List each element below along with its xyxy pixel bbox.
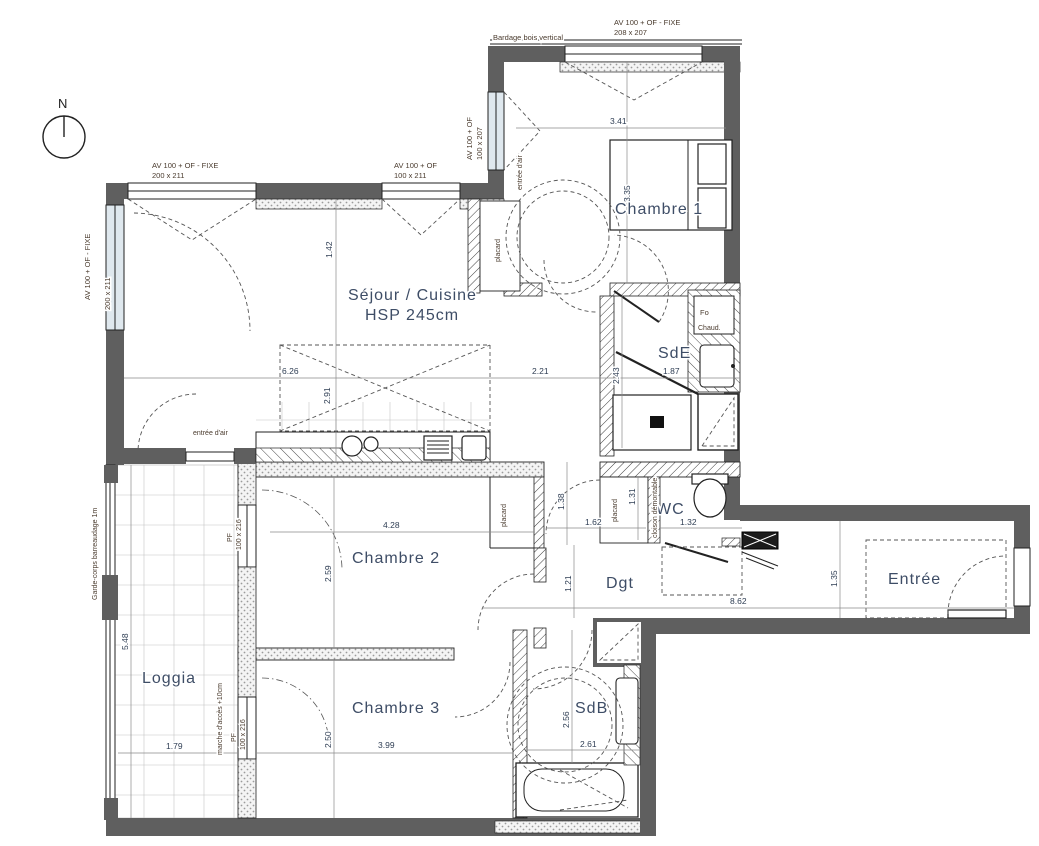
toilet bbox=[692, 474, 728, 517]
dim-sejour-h1: 1.42 bbox=[324, 241, 334, 258]
north-arrow: N bbox=[43, 96, 85, 158]
dim-chambre3-h: 2.50 bbox=[323, 731, 333, 748]
dim-chambre2-h: 2.59 bbox=[323, 565, 333, 582]
label-av3-l1: AV 100 + OF bbox=[394, 161, 437, 170]
floor-plan-drawing: Fo Chaud. bbox=[0, 0, 1039, 846]
sejour-window-arc bbox=[134, 213, 250, 331]
label-pf2-l2: 100 x 216 bbox=[240, 719, 247, 750]
dim-sejour-w: 6.26 bbox=[282, 366, 299, 376]
dim-chambre1-w: 3.41 bbox=[610, 116, 627, 126]
label-bardage: Bardage bois vertical bbox=[493, 33, 563, 42]
loggia-door-leaf bbox=[186, 452, 234, 461]
dim-sdb-h: 2.56 bbox=[561, 711, 571, 728]
dim-sde-h: 2.43 bbox=[611, 367, 621, 384]
label-placard-1: placard bbox=[495, 239, 502, 262]
dim-placard-w: 1.62 bbox=[585, 517, 602, 527]
label-marche: marche d'accès +10cm bbox=[217, 683, 224, 755]
dim-sde-w: 1.87 bbox=[663, 366, 680, 376]
label-placard-2: placard bbox=[501, 504, 508, 527]
turning-circle-chambre1 bbox=[506, 180, 620, 294]
chambre2-door-arc bbox=[478, 574, 534, 630]
wc-door-leaf bbox=[665, 543, 728, 562]
dim-chambre1-h: 3.35 bbox=[622, 185, 632, 202]
room-wc: WC bbox=[656, 501, 685, 518]
placard-wc bbox=[600, 477, 648, 543]
dim-sejour-w2: 2.21 bbox=[532, 366, 549, 376]
dim-sdb-w: 2.61 bbox=[580, 739, 597, 749]
kitchen-appliance bbox=[462, 436, 486, 460]
electrical-panel bbox=[742, 532, 778, 569]
chambre3-door-arc bbox=[455, 662, 510, 717]
washbasin bbox=[700, 345, 734, 387]
label-av5-l2: 100 x 207 bbox=[475, 127, 484, 160]
sdb-shower bbox=[595, 620, 643, 665]
dim-chambre2-w: 4.28 bbox=[383, 520, 400, 530]
dim-dgt-w: 8.62 bbox=[730, 596, 747, 606]
chaud-label: Chaud. bbox=[698, 325, 721, 332]
entry-door-arc bbox=[948, 556, 1006, 614]
label-garde-corps: Garde-corps barreaudage 1m bbox=[92, 508, 99, 600]
fo-label: Fo bbox=[700, 308, 709, 317]
room-sdb: SdB bbox=[575, 700, 608, 717]
chambre2-window-arc bbox=[262, 490, 342, 570]
label-entree-air-left: entrée d'air bbox=[193, 430, 228, 437]
floor-plan: Fo Chaud. bbox=[0, 0, 1039, 846]
loggia-tile-grid bbox=[114, 465, 238, 818]
dim-wc-h: 1.31 bbox=[627, 488, 637, 505]
label-pf1-l1: PF bbox=[227, 533, 234, 542]
sde-shower bbox=[698, 394, 738, 450]
label-av2-l1: AV 100 + OF - FIXE bbox=[152, 161, 218, 170]
room-chambre3: Chambre 3 bbox=[352, 700, 440, 717]
dim-chambre3-w: 3.99 bbox=[378, 740, 395, 750]
label-av1-l2: 208 x 207 bbox=[614, 28, 647, 37]
kitchen-stove bbox=[424, 436, 452, 460]
dim-sejour-h2: 2.91 bbox=[322, 387, 332, 404]
label-av4-l2: 200 x 211 bbox=[103, 278, 112, 310]
dim-loggia-h: 5.48 bbox=[120, 633, 130, 650]
room-sde: SdE bbox=[658, 345, 691, 362]
dim-passage-h: 1.38 bbox=[556, 493, 566, 510]
window-triangle-2 bbox=[382, 199, 460, 235]
entry-door-leaf bbox=[948, 610, 1006, 618]
dim-wc-w: 1.32 bbox=[680, 517, 697, 527]
label-pf2-l1: PF bbox=[231, 733, 238, 742]
label-entree-air-top: entrée d'air bbox=[517, 155, 524, 190]
bathtub bbox=[516, 763, 638, 817]
chambre3-window-arc bbox=[262, 678, 329, 745]
north-label: N bbox=[58, 96, 67, 111]
room-chambre2: Chambre 2 bbox=[352, 550, 440, 567]
label-placard-3: placard bbox=[612, 499, 619, 522]
label-pf1-l2: 100 x 216 bbox=[236, 519, 243, 550]
label-av1-l1: AV 100 + OF - FIXE bbox=[614, 18, 680, 27]
kitchen-counter bbox=[256, 432, 490, 462]
dim-dgt-h: 1.21 bbox=[563, 575, 573, 592]
loggia-door-arc bbox=[138, 394, 196, 452]
room-loggia: Loggia bbox=[142, 670, 196, 687]
room-sejour: Séjour / Cuisine bbox=[348, 287, 477, 304]
label-av2-l2: 200 x 211 bbox=[152, 171, 184, 180]
label-cloison: cloison démontable bbox=[652, 478, 659, 538]
room-entree: Entrée bbox=[888, 571, 941, 588]
dim-loggia-w: 1.79 bbox=[166, 741, 183, 751]
washing-machine bbox=[613, 395, 691, 450]
room-sejour-hsp: HSP 245cm bbox=[365, 307, 459, 324]
label-av5-l1: AV 100 + OF bbox=[465, 117, 474, 160]
room-chambre1: Chambre 1 bbox=[615, 201, 703, 218]
room-dgt: Dgt bbox=[606, 575, 634, 592]
kitchen-dashed-zone bbox=[280, 345, 490, 431]
label-av4-l1: AV 100 + OF - FIXE bbox=[83, 234, 92, 300]
window-fixe-triangle-1 bbox=[128, 199, 256, 240]
placard-chambre2 bbox=[490, 477, 544, 548]
sde-technical-zone: Fo Chaud. bbox=[688, 290, 740, 392]
dim-entree-h: 1.35 bbox=[829, 570, 839, 587]
chambre1-entry-arc bbox=[544, 260, 596, 312]
kitchen-sink bbox=[342, 436, 362, 456]
label-av3-l2: 100 x 211 bbox=[394, 171, 426, 180]
